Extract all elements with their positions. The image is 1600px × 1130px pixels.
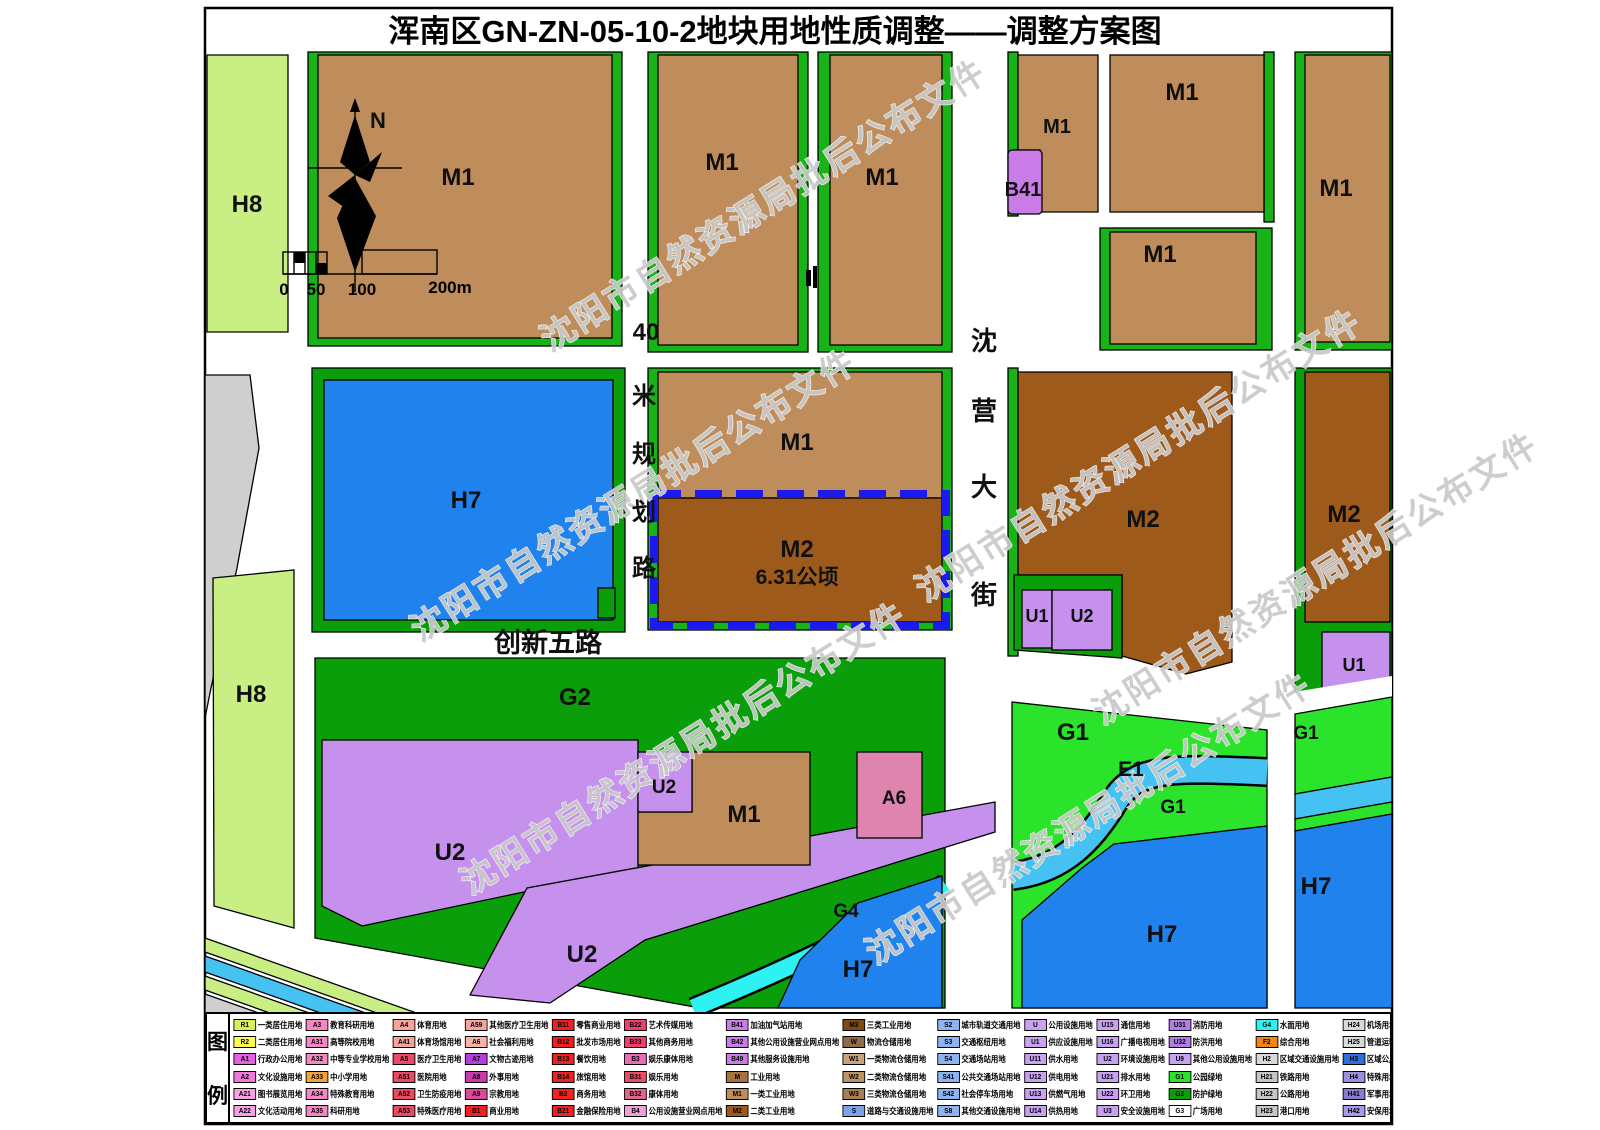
legend-swatch: W1 [843,1053,866,1065]
legend-label: 文物古迹用地 [489,1053,533,1065]
legend-swatch: B41 [726,1019,749,1031]
legend-swatch: A53 [393,1105,416,1117]
legend-item-A52: A52卫生防疫用地 [393,1086,462,1101]
legend-item-B49: B49其他服务设施用地 [726,1052,839,1067]
scale-tick-50: 50 [307,280,326,299]
legend-item-B11: B11零售商业用地 [552,1017,621,1032]
legend-swatch: B49 [726,1053,749,1065]
legend-swatch: W3 [843,1088,866,1100]
legend-label: 供电用地 [1048,1071,1078,1083]
legend-panel: 图 例 R1一类居住用地R2二类居住用地A1行政办公用地A2文化设施用地A21图… [205,1012,1392,1124]
legend-swatch: A51 [393,1071,416,1083]
legend-item-A4: A4体育用地 [393,1017,462,1032]
legend-swatch: S41 [937,1071,960,1083]
legend-item-A34: A34特殊教育用地 [306,1086,390,1101]
map-label-m2-area: 6.31公顷 [756,566,839,589]
map-label-shenying-3: 街 [970,580,997,610]
legend-label: 安全设施用地 [1121,1105,1165,1117]
legend-item-G1: G1公园绿地 [1168,1069,1252,1084]
legend-item-H42: H42安保用地 [1342,1104,1392,1119]
map-label-m1-ne1: M1 [1043,116,1071,138]
legend-item-S: S道路与交通设施用地 [843,1104,934,1119]
legend-label: 排水用地 [1121,1071,1151,1083]
map-label-h7-s: H7 [843,956,874,983]
legend-item-U13: U13供燃气用地 [1024,1086,1093,1101]
legend-label: 科研用地 [330,1105,360,1117]
legend-swatch: A9 [465,1088,488,1100]
legend-label: 旅馆用地 [576,1071,606,1083]
legend-label: 交通场站用地 [961,1053,1005,1065]
map-label-shenying-2: 大 [971,472,997,502]
map-label-h7-se: H7 [1147,921,1178,948]
legend-item-H24: H24机场用地 [1342,1017,1392,1032]
legend-swatch: U3 [1096,1105,1119,1117]
legend-swatch: B2 [552,1088,575,1100]
legend-label: 城市轨道交通用地 [961,1019,1020,1031]
legend-item-B12: B12批发市场用地 [552,1034,621,1049]
legend-swatch: U16 [1096,1036,1119,1048]
legend-label: 交通枢纽用地 [961,1036,1005,1048]
legend-label: 其他公用设施用地 [1193,1053,1252,1065]
map-label-h7-w: H7 [451,487,482,514]
legend-item-U32: U32防洪用地 [1168,1034,1252,1049]
legend-item-W: W物流仓储用地 [843,1034,934,1049]
legend-label: 一类居住用地 [258,1019,302,1031]
legend-item-A9: A9宗教用地 [465,1086,549,1101]
legend-label: 文化活动用地 [258,1105,302,1117]
map-label-m1-ne3: M1 [1143,241,1176,268]
legend-label: 供应设施用地 [1048,1036,1092,1048]
legend-item-H3: H3区域公用设施用地 [1342,1052,1392,1067]
map-label-m2-e2: M2 [1327,501,1360,528]
legend-swatch: A6 [465,1036,488,1048]
legend-item-U1: U1供应设施用地 [1024,1034,1093,1049]
legend-swatch: B23 [624,1036,647,1048]
map-label-m1-s: M1 [727,801,760,828]
legend-item-H4: H4特殊用地 [1342,1069,1392,1084]
legend-swatch: B4 [624,1105,647,1117]
legend-item-S42: S42社会停车场用地 [937,1086,1021,1101]
legend-item-A5: A5医疗卫生用地 [393,1052,462,1067]
legend-swatch: W2 [843,1071,866,1083]
legend-item-A2: A2文化设施用地 [233,1069,302,1084]
legend-item-U16: U16广播电视用地 [1096,1034,1165,1049]
legend-label: 公共交通场站用地 [961,1071,1020,1083]
map-label-m1-n2: M1 [865,164,898,191]
legend-item-B3: B3娱乐康体用地 [624,1052,722,1067]
legend-swatch: H3 [1342,1053,1365,1065]
legend-item-U: U公用设施用地 [1024,1017,1093,1032]
legend-swatch: G4 [1255,1019,1278,1031]
legend-swatch: U32 [1168,1036,1191,1048]
legend-swatch: U15 [1096,1019,1119,1031]
legend-item-R2: R2二类居住用地 [233,1034,302,1049]
legend-item-B32: B32康体用地 [624,1086,722,1101]
legend-label: 供燃气用地 [1048,1088,1085,1100]
legend-item-U15: U15通信用地 [1096,1017,1165,1032]
map-label-g4: G4 [833,901,859,922]
legend-label: 物流仓储用地 [867,1036,911,1048]
legend-item-U3: U3安全设施用地 [1096,1104,1165,1119]
map-label-u2-low: U2 [567,941,598,968]
legend-label: 其他公用设施营业网点用地 [750,1036,839,1048]
legend-label: 文化设施用地 [258,1071,302,1083]
map-label-h8-low: H8 [236,681,267,708]
legend-swatch: H24 [1342,1019,1365,1031]
legend-item-G3: G3广场用地 [1168,1104,1252,1119]
map-label-shenying-0: 沈 [971,326,997,356]
legend-item-F2: F2综合用地 [1255,1034,1339,1049]
legend-swatch: S4 [937,1053,960,1065]
map-mark [806,270,811,286]
legend-label: 二类居住用地 [258,1036,302,1048]
legend-label: 艺术传媒用地 [649,1019,693,1031]
legend-item-M1: M1一类工业用地 [726,1086,839,1101]
map-label-e1: E1 [1118,758,1144,781]
legend-swatch: H2 [1255,1053,1278,1065]
legend-item-A6: A6社会福利用地 [465,1034,549,1049]
legend-item-U11: U11供水用地 [1024,1052,1093,1067]
legend-item-U9: U9其他公用设施用地 [1168,1052,1252,1067]
legend-item-B23: B23其他商务用地 [624,1034,722,1049]
legend-label: 防洪用地 [1193,1036,1223,1048]
small-green-inset [598,588,615,618]
legend-label: 军事用地 [1367,1088,1392,1100]
legend-swatch: H22 [1255,1088,1278,1100]
legend-item-G2: G2防护绿地 [1168,1086,1252,1101]
legend-swatch: U11 [1024,1053,1047,1065]
legend-item-U2: U2环境设施用地 [1096,1052,1165,1067]
legend-label: 商业用地 [489,1105,519,1117]
legend-item-B13: B13餐饮用地 [552,1052,621,1067]
legend-label: 特殊用地 [1367,1071,1392,1083]
scale-tick-100: 100 [348,280,376,299]
legend-label: 特殊医疗用地 [417,1105,461,1117]
north-label: N [370,108,386,133]
parcel-m1-ne3 [1110,232,1256,344]
legend-swatch: H23 [1255,1105,1278,1117]
legend-swatch: H41 [1342,1088,1365,1100]
legend-item-A59: A59其他医疗卫生用地 [465,1017,549,1032]
legend-item-H21: H21铁路用地 [1255,1069,1339,1084]
map-label-m1-c: M1 [780,429,813,456]
legend-label: 批发市场用地 [576,1036,620,1048]
parcel-h8-low [213,570,294,928]
legend-swatch: U31 [1168,1019,1191,1031]
legend-swatch: G1 [1168,1071,1191,1083]
legend-item-B42: B42其他公用设施营业网点用地 [726,1034,839,1049]
legend-item-A21: A21图书展览用地 [233,1086,302,1101]
legend-item-U14: U14供热用地 [1024,1104,1093,1119]
legend-swatch: B1 [465,1105,488,1117]
map-label-shenying-1: 营 [971,396,997,426]
legend-label: 体育场馆用地 [417,1036,461,1048]
legend-swatch: R1 [233,1019,256,1031]
legend-item-R1: R1一类居住用地 [233,1017,302,1032]
map-label-m1-e: M1 [1319,175,1352,202]
map-label-a6: A6 [882,788,906,809]
scale-tick-0: 0 [279,280,288,299]
map-label-m2-e1: M2 [1126,506,1159,533]
map-label-h7-e: H7 [1301,873,1332,900]
legend-grid: R1一类居住用地R2二类居住用地A1行政办公用地A2文化设施用地A21图书展览用… [230,1014,1391,1122]
legend-swatch: H21 [1255,1071,1278,1083]
legend-label: 特殊教育用地 [330,1088,374,1100]
legend-swatch: A7 [465,1053,488,1065]
legend-item-M3: M3三类工业用地 [843,1017,934,1032]
legend-item-G4: G4水面用地 [1255,1017,1339,1032]
legend-swatch: U21 [1096,1071,1119,1083]
map-label-m1-n1: M1 [705,149,738,176]
legend-swatch: S3 [937,1036,960,1048]
legend-swatch: A5 [393,1053,416,1065]
legend-item-A7: A7文物古迹用地 [465,1052,549,1067]
legend-label: 工业用地 [750,1071,780,1083]
legend-label: 外事用地 [489,1071,519,1083]
legend-label: 供水用地 [1048,1053,1078,1065]
legend-label: 康体用地 [649,1088,679,1100]
legend-label: 水面用地 [1280,1019,1310,1031]
legend-item-S41: S41公共交通场站用地 [937,1069,1021,1084]
legend-item-A3: A3教育科研用地 [306,1017,390,1032]
legend-label: 一类工业用地 [750,1088,794,1100]
map-label-road40-1: 米 [632,383,656,410]
legend-item-A32: A32中等专业学校用地 [306,1052,390,1067]
legend-swatch: S [843,1105,866,1117]
legend-item-M2: M2二类工业用地 [726,1104,839,1119]
legend-swatch: A21 [233,1088,256,1100]
legend-item-B2: B2商务用地 [552,1086,621,1101]
legend-item-B31: B31娱乐用地 [624,1069,722,1084]
legend-label: 零售商业用地 [576,1019,620,1031]
legend-swatch: U2 [1096,1053,1119,1065]
legend-item-A53: A53特殊医疗用地 [393,1104,462,1119]
legend-label: 体育用地 [417,1019,447,1031]
legend-swatch: B14 [552,1071,575,1083]
legend-item-A51: A51医院用地 [393,1069,462,1084]
legend-swatch: B22 [624,1019,647,1031]
legend-label: 公用设施用地 [1048,1019,1092,1031]
legend-swatch: A2 [233,1071,256,1083]
legend-item-U31: U31消防用地 [1168,1017,1252,1032]
map-label-h8-top: H8 [232,191,263,218]
legend-label: 区域公用设施用地 [1367,1053,1392,1065]
legend-swatch: A32 [306,1053,329,1065]
legend-label: 卫生防疫用地 [417,1088,461,1100]
legend-label: 其他商务用地 [649,1036,693,1048]
parcel-h7-fareast [1295,814,1392,1008]
legend-swatch: A33 [306,1071,329,1083]
legend-label: 港口用地 [1280,1105,1310,1117]
legend-label: 医疗卫生用地 [417,1053,461,1065]
map-label-m1-nw: M1 [441,164,474,191]
legend-item-W1: W1一类物流仓储用地 [843,1052,934,1067]
legend-label: 二类工业用地 [750,1105,794,1117]
map-label-road40-0: 40 [633,319,660,346]
map-label-u2-mid: U2 [652,777,676,798]
legend-swatch: A41 [393,1036,416,1048]
legend-item-W2: W2二类物流仓储用地 [843,1069,934,1084]
legend-item-S2: S2城市轨道交通用地 [937,1017,1021,1032]
legend-label: 三类工业用地 [867,1019,911,1031]
legend-swatch: A8 [465,1071,488,1083]
legend-label: 行政办公用地 [258,1053,302,1065]
scale-tick-200m: 200m [428,278,471,297]
legend-label: 高等院校用地 [330,1036,374,1048]
legend-item-M: M工业用地 [726,1069,839,1084]
legend-item-A1: A1行政办公用地 [233,1052,302,1067]
legend-label: 环境设施用地 [1121,1053,1165,1065]
legend-label: 广场用地 [1193,1105,1223,1117]
legend-label: 公用设施营业网点用地 [649,1105,723,1117]
legend-item-A35: A35科研用地 [306,1104,390,1119]
legend-label: 区域交通设施用地 [1280,1053,1339,1065]
legend-label: 商务用地 [576,1088,606,1100]
legend-label: 道路与交通设施用地 [867,1105,934,1117]
legend-label: 餐饮用地 [576,1053,606,1065]
map-label-m1-ne2: M1 [1165,79,1198,106]
legend-label: 二类物流仓储用地 [867,1071,926,1083]
map-label-g2: G2 [559,684,591,711]
map-label-u2-big: U2 [435,839,466,866]
legend-label: 金融保险用地 [576,1105,620,1117]
legend-swatch: B31 [624,1071,647,1083]
legend-label: 供热用地 [1048,1105,1078,1117]
legend-item-H25: H25管道运输用地 [1342,1034,1392,1049]
legend-label: 其他交通设施用地 [961,1105,1020,1117]
legend-label: 娱乐用地 [649,1071,679,1083]
legend-swatch: A52 [393,1088,416,1100]
legend-swatch: B32 [624,1088,647,1100]
legend-swatch: F2 [1255,1036,1278,1048]
legend-swatch: B21 [552,1105,575,1117]
legend-item-S3: S3交通枢纽用地 [937,1034,1021,1049]
legend-item-A41: A41体育场馆用地 [393,1034,462,1049]
legend-label: 综合用地 [1280,1036,1310,1048]
legend-item-H22: H22公路用地 [1255,1086,1339,1101]
legend-label: 管道运输用地 [1367,1036,1392,1048]
map-label-m2-key: M2 [780,536,813,563]
legend-swatch: A31 [306,1036,329,1048]
legend-swatch: U22 [1096,1088,1119,1100]
legend-swatch: A22 [233,1105,256,1117]
legend-swatch: R2 [233,1036,256,1048]
legend-label: 三类物流仓储用地 [867,1088,926,1100]
legend-swatch: A1 [233,1053,256,1065]
legend-label: 图书展览用地 [258,1088,302,1100]
legend-item-U12: U12供电用地 [1024,1069,1093,1084]
legend-label: 公园绿地 [1193,1071,1223,1083]
legend-header-char: 例 [207,1080,228,1110]
legend-label: 环卫用地 [1121,1088,1151,1100]
legend-label: 广播电视用地 [1121,1036,1165,1048]
legend-label: 消防用地 [1193,1019,1223,1031]
map-label-u1-c: U1 [1025,606,1048,626]
plan-map-page: N 0 50 100 200m 沈阳市自然资源局批后公布文件 沈阳市自然资源局批… [0,0,1600,1130]
legend-swatch: G3 [1168,1105,1191,1117]
legend-label: 加油加气站用地 [750,1019,802,1031]
legend-item-S8: S8其他交通设施用地 [937,1104,1021,1119]
map-label-u1-e: U1 [1342,655,1365,675]
legend-label: 宗教用地 [489,1088,519,1100]
legend-label: 通信用地 [1121,1019,1151,1031]
legend-item-A22: A22文化活动用地 [233,1104,302,1119]
legend-label: 机场用地 [1367,1019,1392,1031]
legend-swatch: U12 [1024,1071,1047,1083]
legend-label: 娱乐康体用地 [649,1053,693,1065]
legend-label: 一类物流仓储用地 [867,1053,926,1065]
legend-swatch: H25 [1342,1036,1365,1048]
map-label-chuangxin5: 创新五路 [493,627,603,658]
legend-swatch: A59 [465,1019,488,1031]
legend-swatch: U13 [1024,1088,1047,1100]
legend-item-H2: H2区域交通设施用地 [1255,1052,1339,1067]
legend-swatch: B13 [552,1053,575,1065]
legend-item-B1: B1商业用地 [465,1104,549,1119]
map-mark [813,266,817,288]
legend-swatch: A35 [306,1105,329,1117]
legend-label: 铁路用地 [1280,1071,1310,1083]
map-label-road40-3: 划 [632,499,656,526]
green-strip-ne2 [1264,52,1274,222]
legend-item-B21: B21金融保险用地 [552,1104,621,1119]
legend-label: 其他服务设施用地 [750,1053,809,1065]
legend-label: 社会福利用地 [489,1036,533,1048]
map-label-g1-1: G1 [1057,719,1089,746]
legend-item-U21: U21排水用地 [1096,1069,1165,1084]
map-title: 浑南区GN-ZN-05-10-2地块用地性质调整——调整方案图 [388,14,1161,49]
legend-label: 社会停车场用地 [961,1088,1013,1100]
legend-item-H23: H23港口用地 [1255,1104,1339,1119]
legend-label: 医院用地 [417,1071,447,1083]
legend-item-U22: U22环卫用地 [1096,1086,1165,1101]
map-label-road40-4: 路 [632,554,657,582]
legend-label: 公路用地 [1280,1088,1310,1100]
land-use-map: N 0 50 100 200m 沈阳市自然资源局批后公布文件 沈阳市自然资源局批… [0,0,1600,1130]
legend-swatch: H42 [1342,1105,1365,1117]
legend-label: 安保用地 [1367,1105,1392,1117]
legend-item-B41: B41加油加气站用地 [726,1017,839,1032]
legend-swatch: M2 [726,1105,749,1117]
legend-item-A31: A31高等院校用地 [306,1034,390,1049]
legend-swatch: G2 [1168,1088,1191,1100]
legend-item-A33: A33中小学用地 [306,1069,390,1084]
legend-swatch: U1 [1024,1036,1047,1048]
legend-swatch: B11 [552,1019,575,1031]
legend-swatch: S42 [937,1088,960,1100]
legend-swatch: U14 [1024,1105,1047,1117]
legend-swatch: U [1024,1019,1047,1031]
legend-swatch: M1 [726,1088,749,1100]
legend-label: 教育科研用地 [330,1019,374,1031]
legend-swatch: A34 [306,1088,329,1100]
legend-swatch: S8 [937,1105,960,1117]
map-label-road40-2: 规 [632,441,656,468]
legend-swatch: B12 [552,1036,575,1048]
map-label-b41: B41 [1005,179,1042,201]
map-label-g1-e: G1 [1293,723,1319,744]
legend-swatch: M [726,1071,749,1083]
map-label-g1-2: G1 [1160,797,1186,818]
legend-swatch: A4 [393,1019,416,1031]
legend-item-B22: B22艺术传媒用地 [624,1017,722,1032]
legend-item-H41: H41军事用地 [1342,1086,1392,1101]
legend-item-A8: A8外事用地 [465,1069,549,1084]
legend-item-B14: B14旅馆用地 [552,1069,621,1084]
legend-side-header: 图 例 [207,1014,230,1122]
legend-swatch: H4 [1342,1071,1365,1083]
legend-item-S4: S4交通场站用地 [937,1052,1021,1067]
